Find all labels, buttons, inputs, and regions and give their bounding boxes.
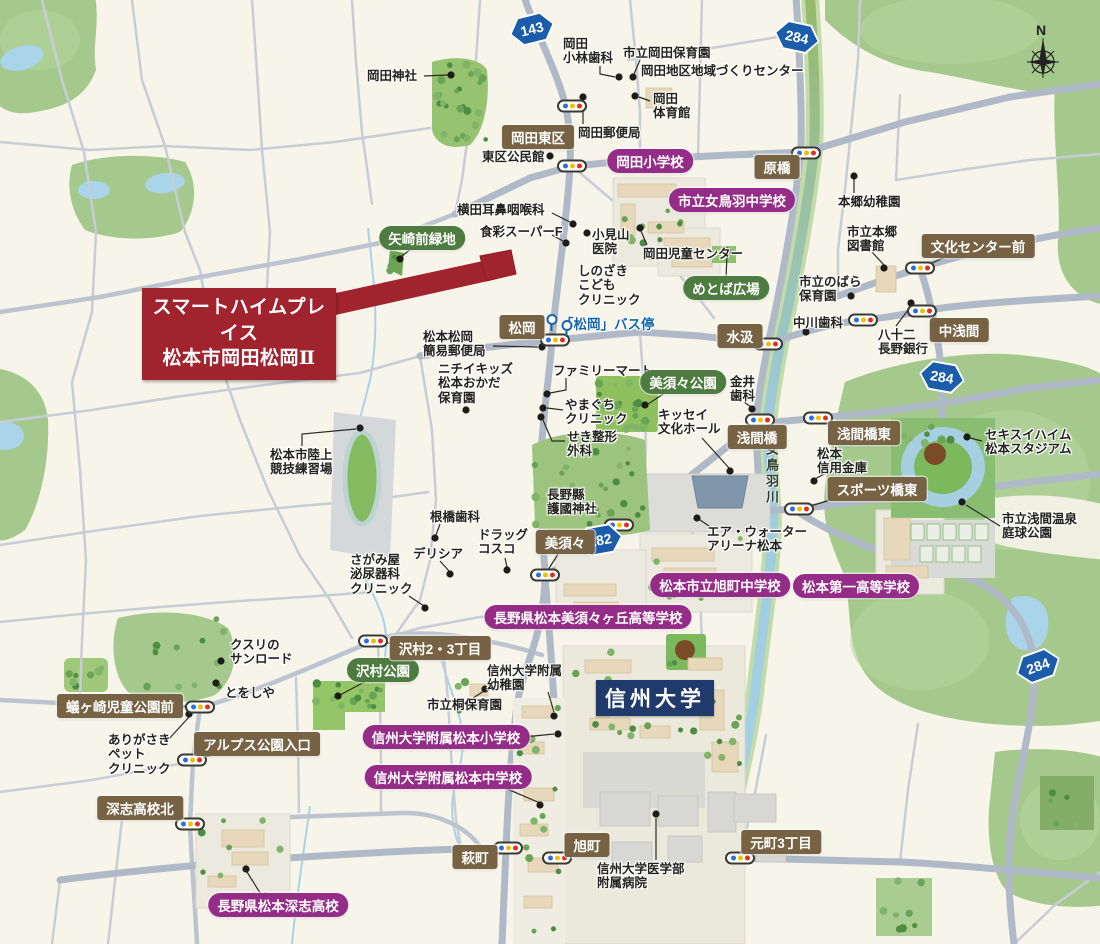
river-name-label: 女鳥羽川 bbox=[762, 442, 781, 506]
traffic-signal-icon bbox=[358, 635, 388, 648]
poi-label: 信州大学医学部 附属病院 bbox=[597, 862, 685, 891]
place-badge: 元町3丁目 bbox=[741, 830, 821, 854]
traffic-signal-icon bbox=[557, 100, 587, 113]
place-badge: 水汲 bbox=[718, 324, 763, 348]
poi-label: 岡田 小林歯科 bbox=[563, 37, 613, 66]
poi-label: 市立浅間温泉 庭球公園 bbox=[1002, 512, 1077, 541]
poi-label: 信州大学附属 幼稚園 bbox=[487, 664, 562, 693]
forest-square bbox=[1040, 776, 1094, 830]
park-badge: 美須々公園 bbox=[640, 370, 726, 394]
place-badge: 中浅間 bbox=[930, 318, 989, 342]
traffic-signal-icon bbox=[185, 701, 215, 714]
traffic-signal-icon bbox=[848, 314, 878, 327]
poi-label: 市立本郷 図書館 bbox=[847, 225, 897, 254]
poi-label: 根橋歯科 bbox=[430, 510, 480, 524]
place-badge: 美須々 bbox=[536, 530, 595, 554]
poi-label: 市立岡田保育園 bbox=[623, 46, 711, 60]
poi-label: 松本 信用金庫 bbox=[817, 447, 867, 476]
poi-label: 松本松岡 簡易郵便局 bbox=[423, 330, 486, 359]
poi-label: 岡田神社 bbox=[367, 69, 417, 83]
park-badge: 沢村公園 bbox=[347, 658, 419, 682]
place-badge: 原橋 bbox=[755, 155, 800, 179]
traffic-signal-icon bbox=[905, 262, 935, 275]
poi-label: とをしや bbox=[225, 686, 275, 700]
traffic-signal-icon bbox=[493, 842, 523, 855]
poi-label: デリシア bbox=[413, 547, 463, 561]
school-badge: 岡田小学校 bbox=[607, 149, 693, 173]
place-badge: 岡田東区 bbox=[502, 125, 574, 149]
property-name-line1: スマートハイムプレイス bbox=[146, 295, 332, 346]
poi-label: 横田耳鼻咽喉科 bbox=[457, 203, 545, 217]
poi-label: 松本市陸上 競技練習場 bbox=[270, 448, 333, 477]
poi-label: 長野縣 護國神社 bbox=[547, 488, 597, 517]
traffic-signal-icon bbox=[557, 160, 587, 173]
poi-label: 小見山 医院 bbox=[592, 228, 630, 257]
shinshu-university-label: 信州大学 bbox=[596, 680, 714, 716]
poi-label: しのざき こども クリニック bbox=[578, 264, 641, 307]
poi-label: ファミリーマート bbox=[553, 364, 653, 378]
school-badge: 長野県松本美須々ヶ丘高等学校 bbox=[485, 605, 692, 629]
poi-label: クスリの サンロード bbox=[230, 638, 293, 667]
poi-label: 岡田 体育館 bbox=[653, 92, 691, 121]
poi-label: ニチイキッズ 松本おかだ 保育園 bbox=[438, 362, 513, 405]
place-badge: スポーツ橋東 bbox=[828, 477, 927, 501]
bus-stop-icon bbox=[547, 314, 556, 330]
poi-label: 岡田郵便局 bbox=[578, 126, 641, 140]
poi-label: キッセイ 文化ホール bbox=[658, 408, 721, 437]
poi-label: 岡田児童センター bbox=[643, 247, 743, 261]
poi-label: エア・ウォーター アリーナ松本 bbox=[707, 525, 807, 554]
poi-label: 岡田地区地域づくりセンター bbox=[641, 64, 804, 78]
school-badge: 市立女鳥羽中学校 bbox=[669, 188, 795, 212]
poi-label: 本郷幼稚園 bbox=[838, 195, 901, 209]
school-badge: 松本市立旭町中学校 bbox=[650, 573, 790, 597]
place-badge: 浅間橋 bbox=[728, 425, 787, 449]
school-badge: 長野県松本深志高校 bbox=[208, 893, 348, 917]
poi-label: ありがさき ペット クリニック bbox=[108, 733, 171, 776]
bus-stop-icon bbox=[562, 320, 571, 336]
traffic-signal-icon bbox=[530, 569, 560, 582]
poi-label: ドラッグ コスコ bbox=[478, 528, 528, 557]
property-name-line2: 松本市岡田松岡Ⅱ bbox=[146, 346, 332, 372]
poi-label: 市立のばら 保育園 bbox=[799, 275, 862, 304]
poi-label: さがみ屋 泌尿器科 クリニック bbox=[350, 553, 413, 596]
place-badge: 蟻ヶ崎児童公園前 bbox=[57, 694, 183, 718]
poi-label: 食彩スーパーF bbox=[480, 225, 563, 239]
place-badge: 深志高校北 bbox=[97, 796, 183, 820]
property-banner: スマートハイムプレイス 松本市岡田松岡Ⅱ bbox=[142, 288, 336, 380]
poi-label: 東区公民館 bbox=[482, 150, 545, 164]
place-badge: 旭町 bbox=[565, 833, 610, 857]
place-badge: 浅間橋東 bbox=[828, 421, 900, 445]
place-badge: 文化センター前 bbox=[922, 234, 1035, 258]
traffic-signal-icon bbox=[784, 503, 814, 516]
place-badge: 萩町 bbox=[453, 845, 498, 869]
compass-north-label: N bbox=[1036, 22, 1046, 38]
poi-label: セキスイハイム 松本スタジアム bbox=[985, 428, 1072, 457]
poi-label: 金井 歯科 bbox=[730, 375, 755, 404]
poi-label: やまぐち クリニック bbox=[565, 398, 628, 427]
poi-label: 市立桐保育園 bbox=[427, 698, 502, 712]
traffic-signal-icon bbox=[907, 305, 937, 318]
school-badge: 松本第一高等学校 bbox=[793, 574, 919, 598]
park-badge: 矢崎前緑地 bbox=[379, 226, 465, 250]
place-badge: 沢村2・3丁目 bbox=[390, 636, 491, 660]
place-badge: 松岡 bbox=[500, 315, 545, 339]
school-badge: 信州大学附属松本中学校 bbox=[365, 765, 532, 789]
matsuoka-bus-stop-label: 「松岡」バス停 bbox=[560, 313, 655, 333]
school-badge: 信州大学附属松本小学校 bbox=[363, 725, 530, 749]
poi-label: せき整形 外科 bbox=[567, 430, 617, 459]
place-badge: アルプス公園入口 bbox=[194, 732, 320, 756]
park-badge: めとば広場 bbox=[683, 276, 769, 300]
area-map: スマートハイムプレイス 松本市岡田松岡Ⅱ 信州大学 女鳥羽川 「松岡」バス停 N… bbox=[0, 0, 1100, 944]
poi-label: 八十二 長野銀行 bbox=[878, 328, 928, 357]
poi-label: 中川歯科 bbox=[793, 316, 843, 330]
